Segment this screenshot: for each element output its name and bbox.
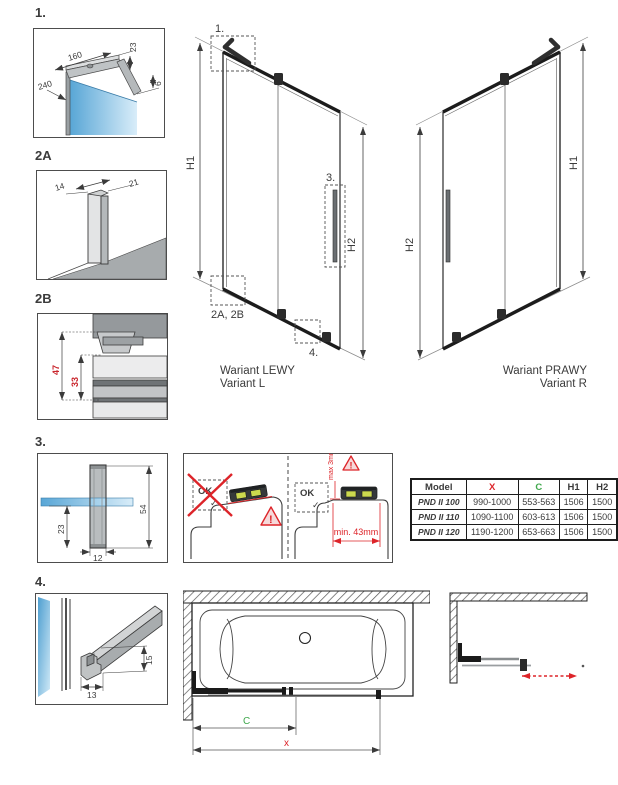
dim-c-label: C — [243, 716, 250, 727]
detail2b-drawing: 47 33 — [37, 313, 168, 420]
wall-profile-pair — [88, 190, 108, 264]
wall-profile — [66, 72, 70, 135]
dim-23: 23 — [56, 524, 66, 534]
callout-4-label: 4. — [309, 347, 318, 359]
callout-3-label: 3. — [326, 172, 335, 184]
table-row: PND II 120 1190-1200 653-663 1506 1500 — [411, 525, 617, 541]
handle — [333, 190, 337, 262]
callout-2ab-label: 2A, 2B — [211, 309, 244, 321]
install-diagram: OK ✓ ! OK ✓ max 3mm ! — [183, 453, 393, 563]
check-icon: ✓ — [312, 500, 320, 510]
dim-12: 12 — [93, 553, 103, 563]
detail4-drawing: 13 15 — [35, 593, 168, 705]
detail1-drawing: 160 240 23 6 — [33, 28, 165, 138]
svg-text:!: ! — [269, 514, 273, 526]
top-roller — [274, 73, 283, 85]
detail2a-label: 2A — [35, 148, 52, 163]
spec-table: Model X C H1 H2 PND II 100 990-1000 553-… — [410, 478, 618, 541]
detail4-label: 4. — [35, 574, 46, 589]
dim-x-label: x — [284, 738, 289, 749]
detail3-drawing: 54 23 12 — [37, 453, 168, 563]
h2-label: H2 — [346, 238, 358, 252]
dim-15: 15 — [144, 655, 154, 665]
table-row: PND II 100 990-1000 553-563 1506 1500 — [411, 495, 617, 510]
detail2a-drawing: 14 21 — [36, 170, 167, 280]
h2-label: H2 — [405, 238, 416, 252]
detail1-label: 1. — [35, 5, 46, 20]
dim-33: 33 — [70, 377, 80, 387]
min-width-label: min. 43mm — [334, 527, 379, 537]
detail2b-label: 2B — [35, 291, 52, 306]
bottom-roller — [452, 332, 461, 342]
bottom-roller — [322, 332, 331, 342]
top-roller — [500, 73, 509, 85]
screen-structure — [443, 40, 560, 349]
bottom-roller — [277, 309, 286, 319]
col-h1: H1 — [559, 479, 588, 495]
glass-panel — [41, 498, 133, 506]
bathtub — [192, 603, 413, 696]
callout-1-label: 1. — [215, 23, 224, 35]
h1-label: H1 — [185, 156, 197, 170]
profile-section — [93, 314, 167, 418]
caption-en: Variant R — [540, 378, 587, 390]
caption-pl: Wariant PRAWY — [503, 365, 587, 377]
col-x: X — [466, 479, 518, 495]
dim-47: 47 — [51, 365, 61, 375]
drain — [300, 633, 311, 644]
wall-hatch — [450, 593, 587, 683]
fixed-panel — [458, 643, 519, 662]
dot — [582, 665, 585, 668]
elevation-right: H1 H2 Wariant PRAWY Variant R — [405, 18, 615, 390]
screen-structure — [223, 40, 340, 349]
table-header-row: Model X C H1 H2 — [411, 479, 617, 495]
bottom-roller — [497, 309, 506, 319]
spirit-level — [341, 487, 377, 499]
caption-pl: Wariant LEWY — [220, 365, 295, 377]
max-gap-label: max 3mm — [328, 453, 335, 480]
dim-54: 54 — [138, 504, 148, 514]
dim-13: 13 — [87, 690, 97, 700]
dim-6: 6 — [153, 81, 163, 86]
col-c: C — [518, 479, 559, 495]
elevation-left: H1 H2 1. 3. 2A, 2B 4. Wariant LEWY Varia… — [185, 18, 400, 390]
h1-label: H1 — [568, 156, 580, 170]
detail3-label: 3. — [35, 434, 46, 449]
svg-text:!: ! — [350, 461, 353, 471]
dim-23: 23 — [128, 42, 138, 52]
corner-plan-view — [447, 590, 615, 690]
instruction-page: 1. 160 240 23 6 2A 14 21 2B — [0, 0, 618, 785]
caption-en: Variant L — [220, 378, 266, 390]
handle — [446, 190, 450, 262]
col-h2: H2 — [588, 479, 617, 495]
table-row: PND II 110 1090-1100 603-613 1506 1500 — [411, 510, 617, 525]
tub-top-view: C x — [183, 585, 430, 763]
roller-block — [520, 659, 527, 671]
col-model: Model — [411, 479, 466, 495]
ok-label-good: OK — [300, 488, 314, 499]
glass-panel — [38, 597, 50, 697]
